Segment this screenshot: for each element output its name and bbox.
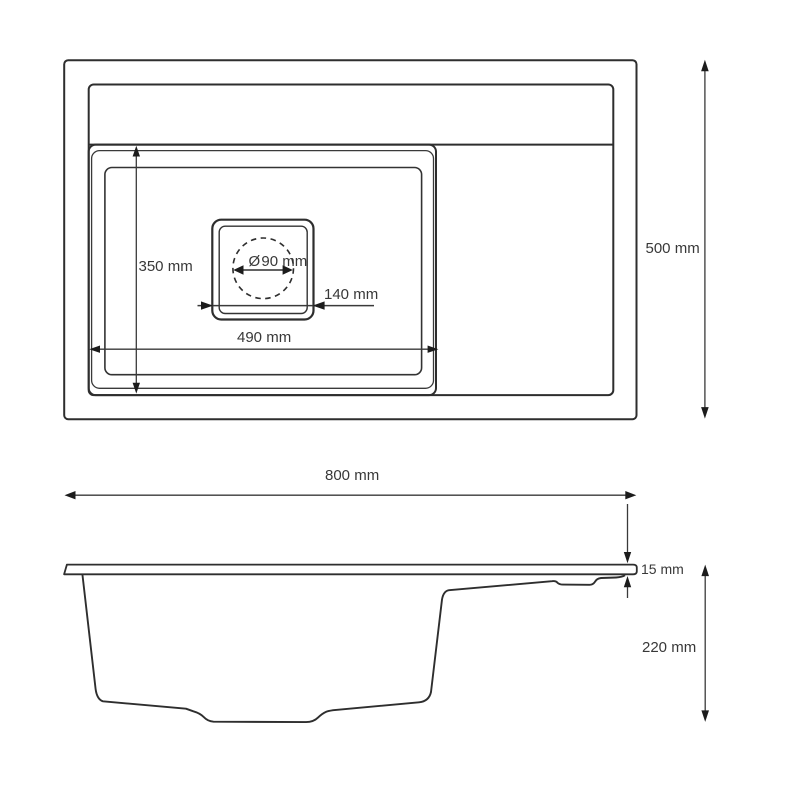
svg-text:800 mm: 800 mm <box>325 467 379 484</box>
svg-text:140 mm: 140 mm <box>324 286 378 303</box>
svg-text:350 mm: 350 mm <box>139 258 193 275</box>
svg-text:490 mm: 490 mm <box>237 329 291 346</box>
svg-text:220 mm: 220 mm <box>642 639 696 656</box>
svg-text:Ø 90 mm: Ø 90 mm <box>249 253 308 270</box>
svg-text:15 mm: 15 mm <box>641 561 684 577</box>
svg-text:500 mm: 500 mm <box>646 240 700 257</box>
